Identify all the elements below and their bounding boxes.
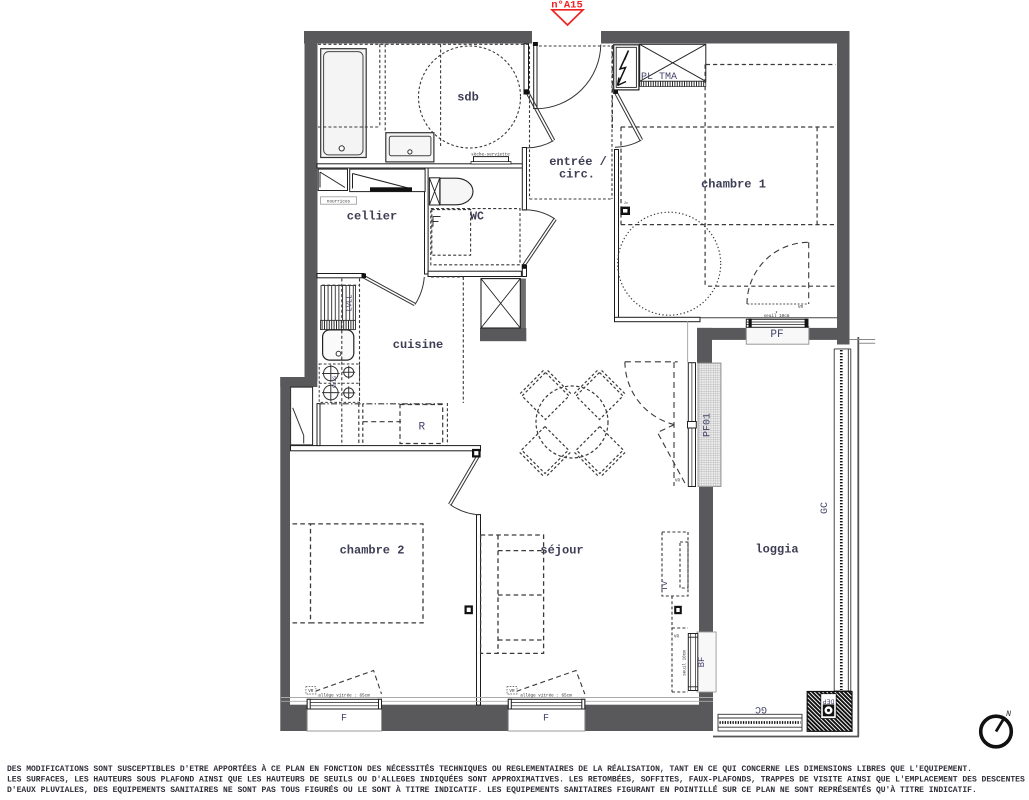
svg-text:VR: VR — [674, 635, 680, 640]
svg-text:séjour: séjour — [540, 544, 583, 558]
svg-text:CUIS: CUIS — [332, 376, 338, 388]
svg-text:DES MODIFICATIONS SONT SUSCEPT: DES MODIFICATIONS SONT SUSCEPTIBLES D'ET… — [7, 765, 972, 774]
svg-text:chambre 1: chambre 1 — [701, 178, 766, 192]
svg-text:allège vitrée : 65cm: allège vitrée : 65cm — [318, 694, 370, 699]
svg-text:PL TMA: PL TMA — [641, 72, 677, 83]
svg-text:seuil 10cm: seuil 10cm — [683, 650, 688, 676]
svg-text:loggia: loggia — [755, 543, 798, 557]
svg-text:GC: GC — [820, 502, 831, 514]
svg-text:cuisine: cuisine — [393, 338, 443, 352]
svg-text:DEP: DEP — [823, 698, 835, 705]
svg-text:▾: ▾ — [775, 311, 778, 316]
svg-text:GC: GC — [755, 703, 767, 714]
svg-text:PF: PF — [770, 329, 783, 341]
svg-text:VR: VR — [798, 305, 804, 310]
svg-text:cellier: cellier — [347, 210, 397, 224]
svg-text:F: F — [341, 714, 347, 725]
svg-text:VR: VR — [675, 479, 681, 484]
svg-text:VR: VR — [509, 689, 515, 694]
svg-text:BF: BF — [697, 657, 707, 668]
svg-text:LES SURFACES, LES HAUTEURS SOU: LES SURFACES, LES HAUTEURS SOUS PLAFOND … — [7, 776, 1025, 785]
svg-text:WC: WC — [470, 211, 484, 224]
svg-text:allège vitrée : 65cm: allège vitrée : 65cm — [520, 694, 572, 699]
svg-text:TV: TV — [660, 580, 670, 591]
svg-text:circ.: circ. — [559, 168, 595, 182]
svg-text:N: N — [1006, 709, 1012, 719]
svg-text:sdb: sdb — [457, 91, 479, 105]
svg-text:nourrices: nourrices — [327, 200, 351, 205]
svg-text:2v: 2v — [624, 201, 628, 205]
svg-text:chambre 2: chambre 2 — [340, 544, 405, 558]
svg-text:R: R — [418, 422, 425, 434]
svg-text:F: F — [543, 714, 549, 725]
svg-text:VR: VR — [308, 689, 314, 694]
svg-text:LVLL: LVLL — [347, 295, 355, 312]
svg-text:D'EAUX PLUVIALES, DES EQUIPEME: D'EAUX PLUVIALES, DES EQUIPEMENTS SANITA… — [7, 786, 977, 795]
svg-text:sèche-serviette: sèche-serviette — [471, 153, 510, 158]
svg-text:PF01: PF01 — [703, 413, 714, 437]
